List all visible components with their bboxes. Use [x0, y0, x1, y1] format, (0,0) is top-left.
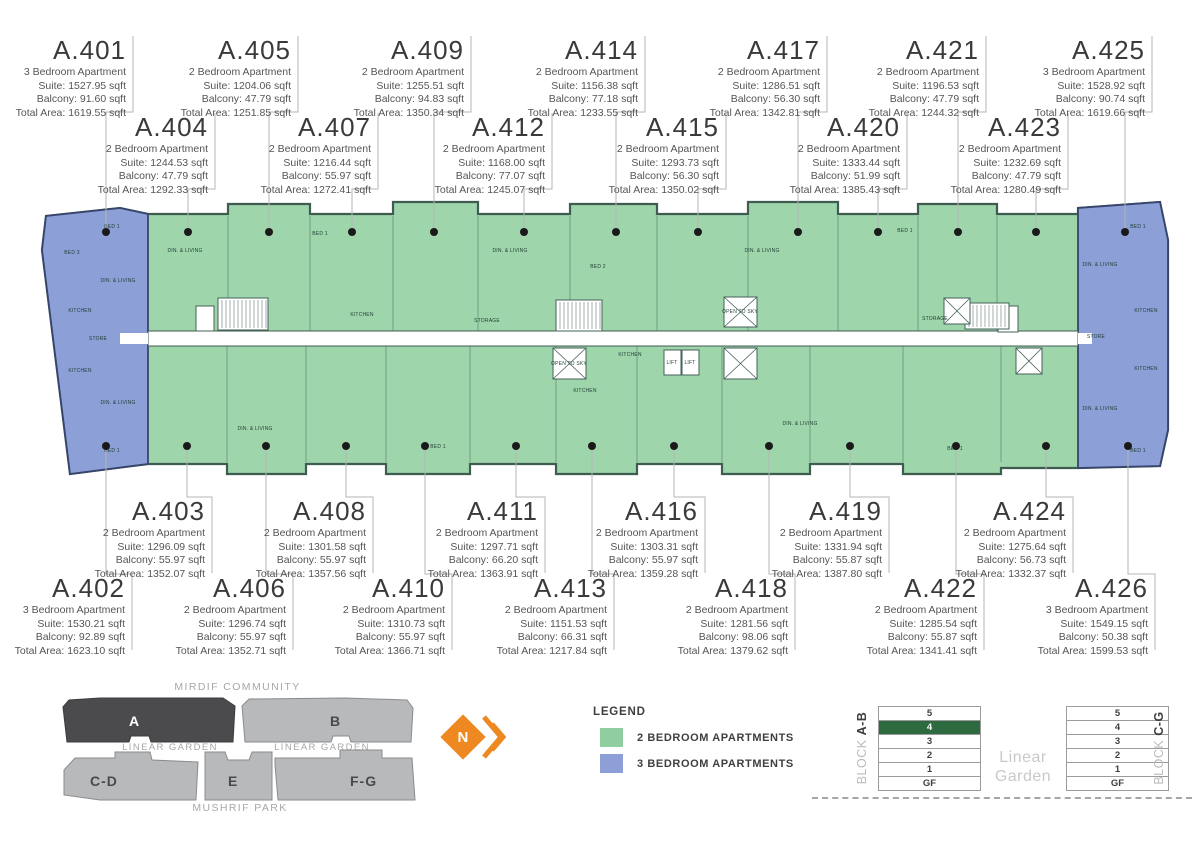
unit-hotspot-A.401[interactable]	[102, 228, 110, 236]
unit-hotspot-A.420[interactable]	[874, 228, 882, 236]
room-label: BED 1	[312, 231, 327, 237]
stair-core	[556, 300, 602, 331]
site-block-e-label: E	[228, 773, 238, 789]
legend-label-2br: 2 BEDROOM APARTMENTS	[637, 732, 794, 744]
site-block-cd[interactable]	[64, 752, 198, 800]
room-label: DIN. & LIVING	[237, 426, 272, 432]
room-label: DIN. & LIVING	[492, 248, 527, 254]
site-block-fg-label: F-G	[350, 773, 377, 789]
room-label: DIN. & LIVING	[100, 400, 135, 406]
leader-line-A.401	[106, 36, 133, 232]
unit-hotspot-A.413[interactable]	[588, 442, 596, 450]
room-label: DIN. & LIVING	[744, 248, 779, 254]
stair-core	[218, 298, 268, 330]
room-label: KITCHEN	[1134, 308, 1158, 314]
unit-hotspot-A.412[interactable]	[520, 228, 528, 236]
room-label: BED 1	[430, 444, 445, 450]
unit-hotspot-A.421[interactable]	[954, 228, 962, 236]
room-label: OPEN TO SKY	[722, 309, 758, 315]
room-label: STORAGE	[922, 316, 948, 322]
unit-hotspot-A.424[interactable]	[1042, 442, 1050, 450]
floorplan-page: BED 1BED 3DIN. & LIVINGKITCHENSTOREKITCH…	[0, 0, 1200, 848]
unit-hotspot-A.415[interactable]	[694, 228, 702, 236]
north-arrow-label: N	[458, 729, 469, 746]
floor-row-A-B-5[interactable]: 5	[879, 707, 980, 721]
room-label: KITCHEN	[68, 368, 92, 374]
room-label: KITCHEN	[618, 352, 642, 358]
unit-hotspot-A.414[interactable]	[612, 228, 620, 236]
legend-swatch-2br	[600, 728, 623, 747]
site-block-b[interactable]	[242, 698, 413, 742]
central-corridor	[148, 331, 1078, 346]
site-block-a[interactable]	[63, 698, 235, 742]
floor-row-A-B-4[interactable]: 4	[879, 721, 980, 735]
unit-hotspot-A.426[interactable]	[1124, 442, 1132, 450]
room-label: STORE	[1087, 334, 1106, 340]
site-block-cd-label: C-D	[90, 773, 118, 789]
unit-hotspot-A.419[interactable]	[846, 442, 854, 450]
leader-line-A.422	[956, 446, 984, 650]
leader-line-A.402	[106, 446, 132, 650]
room-label: DIN. & LIVING	[1082, 262, 1117, 268]
leader-line-A.405	[269, 36, 298, 232]
room-label: STORE	[89, 336, 108, 342]
unit-hotspot-A.423[interactable]	[1032, 228, 1040, 236]
room-label: DIN. & LIVING	[167, 248, 202, 254]
unit-hotspot-A.406[interactable]	[262, 442, 270, 450]
floor-selector-block-ab: 54321GF	[878, 706, 981, 791]
leader-line-A.414	[616, 36, 645, 232]
legend-item-2br: 2 BEDROOM APARTMENTS	[600, 728, 794, 747]
room-label: KITCHEN	[350, 312, 374, 318]
unit-hotspot-A.425[interactable]	[1121, 228, 1129, 236]
legend-swatch-3br	[600, 754, 623, 773]
unit-hotspot-A.418[interactable]	[765, 442, 773, 450]
unit-hotspot-A.402[interactable]	[102, 442, 110, 450]
leader-line-A.413	[592, 446, 614, 650]
site-block-a-label: A	[129, 713, 140, 729]
leader-line-A.406	[266, 446, 293, 650]
site-block-fg[interactable]	[275, 750, 415, 800]
room-label: LIFT	[666, 360, 677, 366]
room-label: KITCHEN	[68, 308, 92, 314]
unit-hotspot-A.403[interactable]	[183, 442, 191, 450]
block-ab-vertical-label: BLOCK A-B	[855, 703, 871, 793]
leader-line-A.426	[1128, 446, 1155, 650]
block-cg-vertical-label: BLOCK C-G	[1152, 703, 1168, 793]
unit-hotspot-A.411[interactable]	[512, 442, 520, 450]
site-block-e[interactable]	[205, 752, 272, 800]
unit-hotspot-A.404[interactable]	[184, 228, 192, 236]
room-label: DIN. & LIVING	[1082, 406, 1117, 412]
legend-label-3br: 3 BEDROOM APARTMENTS	[637, 758, 794, 770]
legend-item-3br: 3 BEDROOM APARTMENTS	[600, 754, 794, 773]
north-chevron-icon	[480, 714, 510, 760]
room-label: LIFT	[684, 360, 695, 366]
unit-hotspot-A.409[interactable]	[430, 228, 438, 236]
room-label: BED 1	[897, 228, 912, 234]
site-plan: A B C-D E F-G	[55, 682, 475, 822]
room-label: OPEN TO SKY	[551, 361, 587, 367]
floor-row-A-B-2[interactable]: 2	[879, 749, 980, 763]
room-label: KITCHEN	[1134, 366, 1158, 372]
linear-garden-text: Linear Garden	[984, 748, 1062, 786]
room-label: DIN. & LIVING	[100, 278, 135, 284]
room-label: BED 1	[1130, 448, 1145, 454]
room-label: DIN. & LIVING	[782, 421, 817, 427]
leader-line-A.410	[425, 446, 452, 650]
room-label: BED 3	[64, 250, 79, 256]
legend-title: LEGEND	[593, 706, 646, 718]
ground-dashed-line	[812, 797, 1192, 799]
unit-hotspot-A.407[interactable]	[348, 228, 356, 236]
room-label: STORAGE	[474, 318, 500, 324]
room-label: BED 2	[590, 264, 605, 270]
unit-hotspot-A.405[interactable]	[265, 228, 273, 236]
lift-core	[196, 306, 214, 331]
unit-hotspot-A.408[interactable]	[342, 442, 350, 450]
leader-line-A.418	[769, 446, 795, 650]
site-block-b-label: B	[330, 713, 341, 729]
floor-row-A-B-1[interactable]: 1	[879, 763, 980, 777]
leader-line-A.421	[958, 36, 986, 232]
room-label: BED 1	[1130, 224, 1145, 230]
room-label: KITCHEN	[573, 388, 597, 394]
stair-core	[965, 303, 1009, 329]
corridor-gap-left	[120, 333, 148, 344]
unit-hotspot-A.422[interactable]	[952, 442, 960, 450]
floor-row-A-B-3[interactable]: 3	[879, 735, 980, 749]
unit-hotspot-A.410[interactable]	[421, 442, 429, 450]
unit-hotspot-A.417[interactable]	[794, 228, 802, 236]
unit-hotspot-A.416[interactable]	[670, 442, 678, 450]
floor-row-A-B-GF[interactable]: GF	[879, 777, 980, 790]
